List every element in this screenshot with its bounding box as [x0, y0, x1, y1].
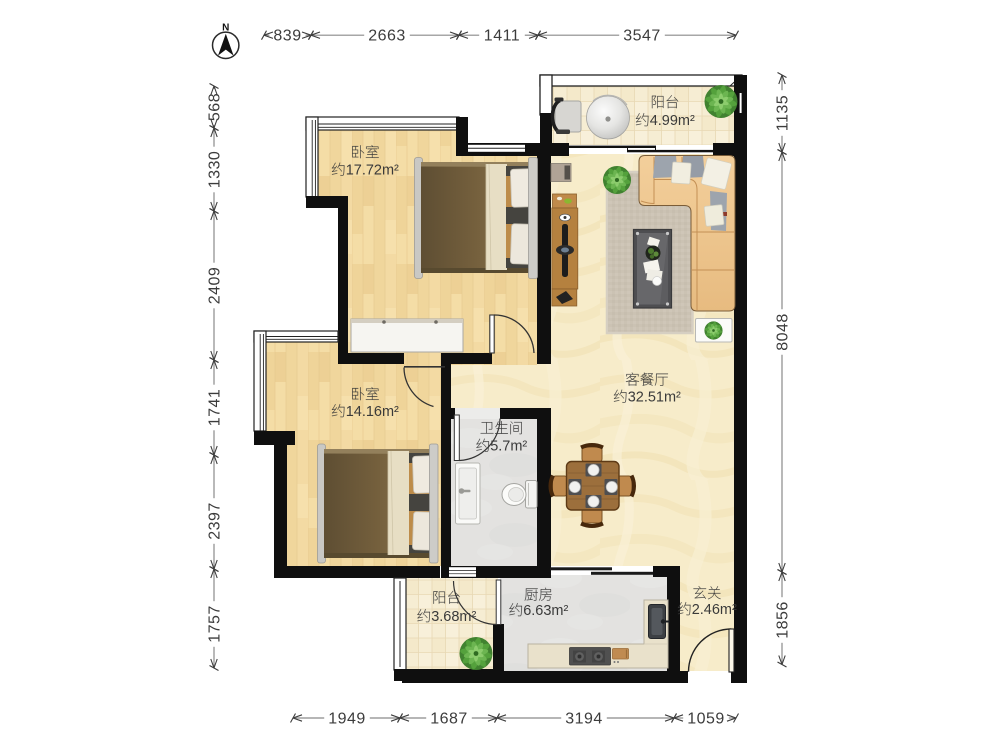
svg-text:14.16m²: 14.16m² [346, 404, 399, 420]
svg-text:1856: 1856 [775, 601, 792, 639]
svg-text:32.51m²: 32.51m² [628, 390, 681, 406]
svg-text:6.63m²: 6.63m² [523, 603, 568, 619]
svg-text:1757: 1757 [207, 605, 224, 643]
svg-text:3547: 3547 [623, 28, 661, 45]
svg-text:2409: 2409 [207, 267, 224, 305]
svg-text:1059: 1059 [687, 711, 725, 728]
svg-text:1687: 1687 [430, 711, 468, 728]
svg-text:3.68m²: 3.68m² [431, 609, 476, 625]
svg-text:5.7m²: 5.7m² [490, 439, 527, 455]
svg-text:568: 568 [207, 93, 224, 121]
svg-text:1330: 1330 [207, 151, 224, 189]
svg-text:17.72m²: 17.72m² [346, 163, 399, 179]
svg-text:2663: 2663 [368, 28, 406, 45]
svg-text:2397: 2397 [207, 502, 224, 540]
svg-text:4.99m²: 4.99m² [650, 113, 695, 129]
svg-text:839: 839 [273, 28, 301, 45]
svg-text:1135: 1135 [775, 95, 792, 131]
svg-text:8048: 8048 [775, 313, 792, 351]
svg-text:N: N [222, 23, 229, 34]
svg-text:2.46m²: 2.46m² [692, 602, 737, 618]
svg-text:3194: 3194 [565, 711, 603, 728]
svg-text:1411: 1411 [484, 28, 520, 45]
svg-text:1741: 1741 [207, 389, 224, 427]
svg-text:1949: 1949 [328, 711, 366, 728]
